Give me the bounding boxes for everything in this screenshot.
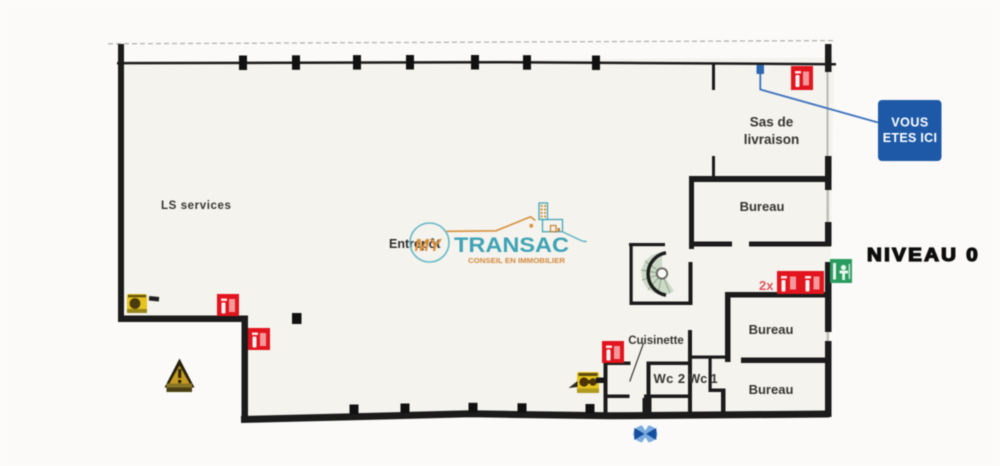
svg-text:Wc 2: Wc 2 [654, 371, 686, 386]
svg-text:Bureau: Bureau [740, 199, 785, 214]
svg-text:NIVEAU 0: NIVEAU 0 [867, 245, 980, 265]
svg-text:MY: MY [415, 235, 443, 255]
svg-text:Sas de: Sas de [750, 115, 794, 130]
svg-text:LS services: LS services [161, 200, 232, 212]
svg-text:livraison: livraison [744, 132, 800, 147]
svg-text:CONSEIL EN IMMOBILIER: CONSEIL EN IMMOBILIER [468, 256, 566, 265]
svg-text:ETES ICI: ETES ICI [883, 131, 938, 145]
svg-text:VOUS: VOUS [891, 116, 928, 130]
svg-text:Bureau: Bureau [749, 322, 794, 337]
svg-text:2x: 2x [759, 278, 774, 293]
svg-text:Wc 1: Wc 1 [688, 372, 717, 386]
svg-text:Cuisinette: Cuisinette [628, 335, 684, 347]
svg-text:TRANSAC: TRANSAC [454, 234, 569, 257]
svg-text:Bureau: Bureau [749, 382, 794, 397]
